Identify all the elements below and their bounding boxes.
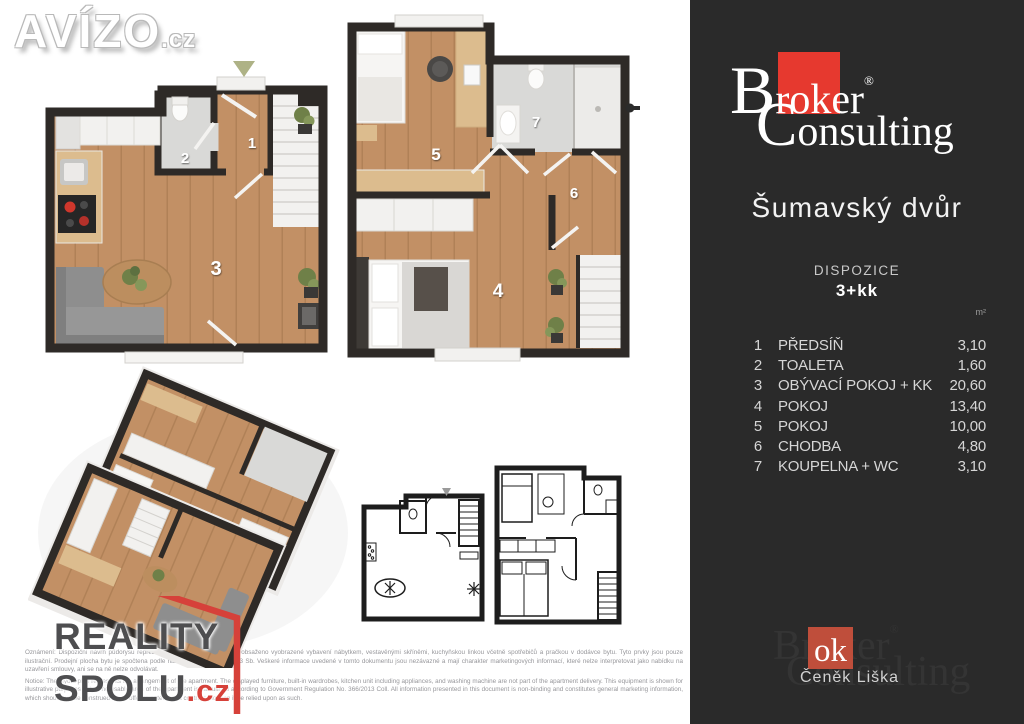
avizo-brand: AVÍZO xyxy=(14,5,161,57)
entrance-arrow-icon xyxy=(233,61,255,77)
listing-sheet: AVÍZO.cz xyxy=(0,0,1024,724)
ground-floor-plan: 1 2 3 xyxy=(30,55,340,365)
reality-tld: .cz xyxy=(186,673,230,708)
window xyxy=(395,15,483,27)
reality-line1: REALITY xyxy=(54,616,219,658)
svg-text:1: 1 xyxy=(248,135,256,152)
info-sidebar: Broker® Consulting Broker® Consulting Šu… xyxy=(690,0,1024,724)
window xyxy=(435,348,520,361)
svg-text:5: 5 xyxy=(431,145,440,164)
agent-ok-badge: ok xyxy=(808,627,853,669)
svg-text:4: 4 xyxy=(493,281,504,302)
plant-marker xyxy=(467,582,481,596)
svg-text:7: 7 xyxy=(532,114,540,131)
schematic-ground-floor xyxy=(356,488,488,640)
svg-text:6: 6 xyxy=(570,185,578,202)
reality-spolu-logo: REALITY SPOLU.cz xyxy=(48,596,258,724)
agent-name: Čeněk Liška xyxy=(800,669,899,687)
dining-table xyxy=(103,260,171,304)
avizo-logo: AVÍZO.cz xyxy=(14,4,196,58)
agent-signature: ok Čeněk Liška xyxy=(690,0,1024,724)
stairs xyxy=(578,255,623,348)
entrance-door xyxy=(217,77,265,90)
wardrobe xyxy=(355,199,473,231)
double-bed xyxy=(355,257,469,353)
svg-text:3: 3 xyxy=(210,258,221,280)
door-key-icon xyxy=(626,104,641,114)
schematic-upper-floor xyxy=(486,460,626,644)
upper-floor-plan: 5 7 6 4 xyxy=(340,5,640,365)
reality-line2: SPOLU.cz xyxy=(54,668,231,710)
svg-text:2: 2 xyxy=(181,150,189,167)
avizo-tld: .cz xyxy=(161,26,196,53)
